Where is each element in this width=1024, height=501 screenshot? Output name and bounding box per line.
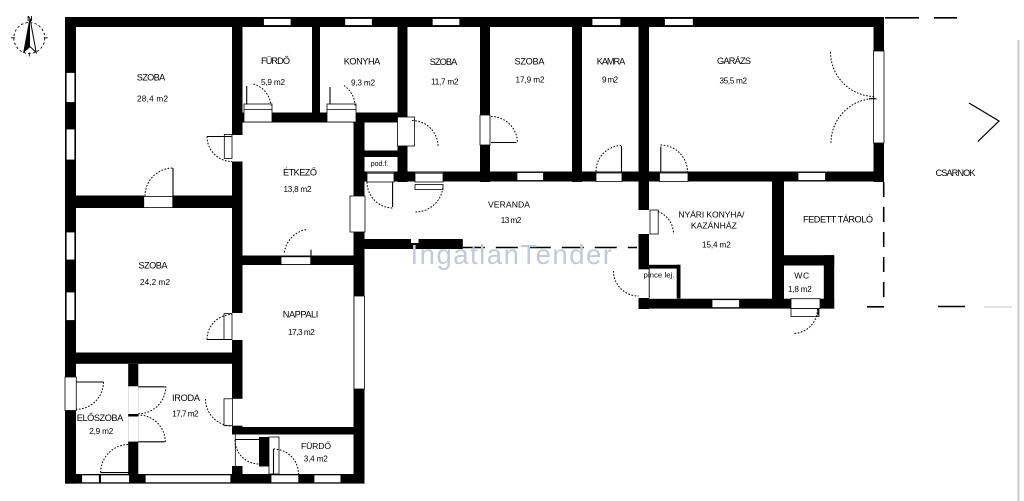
- svg-text:CSARNOK: CSARNOK: [936, 168, 977, 178]
- svg-text:NAPPALI: NAPPALI: [283, 309, 319, 319]
- svg-text:SZOBA: SZOBA: [137, 73, 166, 83]
- svg-text:28,4 m2: 28,4 m2: [137, 95, 168, 104]
- svg-text:17,7 m2: 17,7 m2: [172, 409, 199, 418]
- svg-text:15,4 m2: 15,4 m2: [702, 240, 731, 249]
- svg-text:pince lej.: pince lej.: [644, 273, 675, 280]
- svg-text:35,5 m2: 35,5 m2: [720, 77, 748, 86]
- svg-text:GARÁZS: GARÁZS: [717, 56, 751, 66]
- svg-text:9,3 m2: 9,3 m2: [351, 78, 375, 87]
- svg-text:WC: WC: [794, 271, 809, 281]
- svg-text:VERANDA: VERANDA: [488, 200, 530, 210]
- svg-text:NYÁRI KONYHA/: NYÁRI KONYHA/: [678, 209, 745, 219]
- svg-text:17,9 m2: 17,9 m2: [516, 75, 545, 84]
- svg-text:11,7 m2: 11,7 m2: [431, 78, 459, 87]
- svg-text:ÉTKEZŐ: ÉTKEZŐ: [283, 167, 317, 177]
- svg-text:SZOBA: SZOBA: [430, 57, 458, 67]
- svg-text:FEDETT TÁROLÓ: FEDETT TÁROLÓ: [803, 214, 873, 224]
- svg-text:N: N: [27, 14, 32, 23]
- svg-text:FÜRDŐ: FÜRDŐ: [301, 441, 331, 451]
- svg-text:FÜRDŐ: FÜRDŐ: [261, 56, 290, 66]
- svg-text:2,9 m2: 2,9 m2: [89, 427, 113, 436]
- svg-text:KONYHA: KONYHA: [344, 57, 381, 67]
- svg-text:pod.f.: pod.f.: [371, 161, 389, 168]
- svg-text:SZOBA: SZOBA: [515, 56, 546, 66]
- svg-text:KAMRA: KAMRA: [597, 56, 626, 66]
- svg-text:9 m2: 9 m2: [602, 75, 618, 84]
- svg-text:13,8 m2: 13,8 m2: [284, 185, 312, 194]
- svg-text:1,8 m2: 1,8 m2: [788, 285, 812, 294]
- svg-text:17,3 m2: 17,3 m2: [288, 328, 315, 337]
- svg-text:IRODA: IRODA: [172, 393, 201, 403]
- svg-text:24,2 m2: 24,2 m2: [140, 278, 170, 287]
- svg-text:5,9 m2: 5,9 m2: [261, 78, 285, 87]
- svg-text:KAZÁNHÁZ: KAZÁNHÁZ: [691, 221, 737, 231]
- svg-text:3,4 m2: 3,4 m2: [304, 455, 328, 464]
- svg-text:13 m2: 13 m2: [501, 216, 522, 225]
- svg-text:SZOBA: SZOBA: [139, 261, 169, 271]
- svg-text:ELŐSZOBA: ELŐSZOBA: [77, 413, 124, 423]
- svg-text:IngatlanTender: IngatlanTender: [411, 239, 614, 270]
